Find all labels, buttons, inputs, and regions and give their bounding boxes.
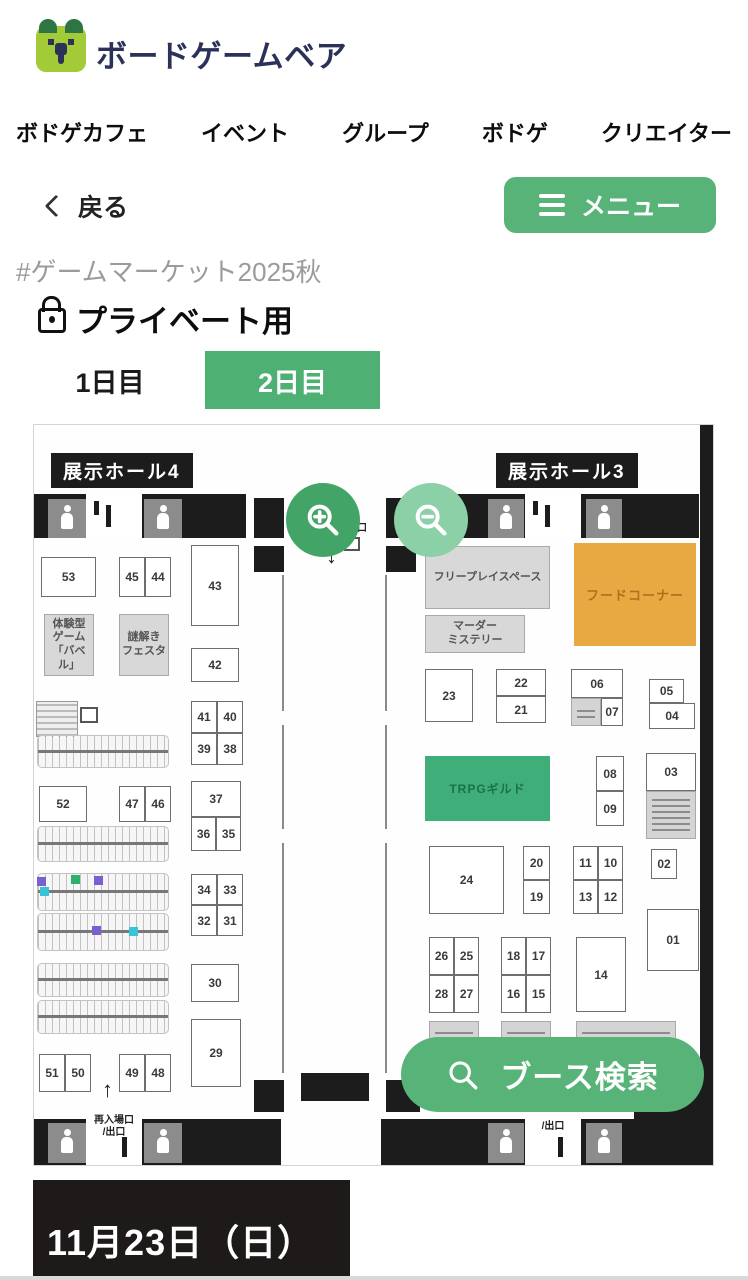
door-mark bbox=[94, 501, 99, 515]
zoom-in-icon bbox=[303, 500, 343, 540]
booth-38: 38 bbox=[217, 733, 243, 765]
area-trpg-guild: TRPGギルド bbox=[425, 756, 550, 821]
booth-row-strip-5 bbox=[37, 963, 169, 997]
booth-04: 04 bbox=[649, 703, 695, 729]
booth-02: 02 bbox=[651, 849, 677, 879]
hall3-label: 展示ホール3 bbox=[496, 453, 638, 488]
door-mark bbox=[122, 1137, 127, 1157]
nav-item-group[interactable]: グループ bbox=[342, 116, 429, 148]
booth-33: 33 bbox=[217, 874, 243, 905]
door-mark bbox=[545, 505, 550, 527]
exit-label: /出口 bbox=[529, 1121, 577, 1133]
booth-47: 47 bbox=[119, 786, 145, 822]
logo-ear-left bbox=[39, 19, 57, 33]
booth-37: 37 bbox=[191, 781, 241, 817]
booth-46: 46 bbox=[145, 786, 171, 822]
search-icon bbox=[446, 1058, 480, 1092]
booth-43: 43 bbox=[191, 545, 239, 626]
booth-21: 21 bbox=[496, 696, 546, 723]
booth-29: 29 bbox=[191, 1019, 241, 1087]
pillar bbox=[254, 1080, 284, 1112]
brand-title[interactable]: ボードゲームベア bbox=[96, 31, 347, 76]
booth-49: 49 bbox=[119, 1054, 145, 1092]
booth-42: 42 bbox=[191, 648, 239, 682]
booth-06: 06 bbox=[571, 669, 623, 698]
menu-label: メニュー bbox=[581, 187, 681, 223]
corridor-wall-line bbox=[282, 843, 284, 1073]
tab-day1[interactable]: 1日目 bbox=[35, 351, 185, 409]
booth-search-button[interactable]: ブース検索 bbox=[401, 1037, 704, 1112]
booth-07: 07 bbox=[601, 698, 623, 726]
back-button[interactable]: 戻る bbox=[48, 188, 128, 224]
main-nav: ボドゲカフェ イベント グループ ボドゲ クリエイター bbox=[16, 116, 732, 148]
nav-item-bodoge-cafe[interactable]: ボドゲカフェ bbox=[16, 116, 148, 148]
booth-53: 53 bbox=[41, 557, 96, 597]
zoom-in-button[interactable] bbox=[286, 483, 360, 557]
logo-ear-right bbox=[65, 19, 83, 33]
area-small-info-cell bbox=[571, 698, 601, 726]
highlighted-booth bbox=[40, 887, 49, 896]
corridor-wall-line bbox=[385, 843, 387, 1073]
booth-01: 01 bbox=[647, 909, 699, 971]
booth-50: 50 bbox=[65, 1054, 91, 1092]
menu-button[interactable]: メニュー bbox=[504, 177, 716, 233]
booth-22: 22 bbox=[496, 669, 546, 696]
booth-row-strip-6 bbox=[37, 1000, 169, 1034]
wall-right bbox=[700, 425, 713, 1165]
small-booth-cluster-box bbox=[80, 707, 98, 723]
logo-mouth bbox=[58, 52, 64, 64]
pillar bbox=[254, 546, 284, 572]
booth-41: 41 bbox=[191, 701, 217, 733]
booth-32: 32 bbox=[191, 905, 217, 936]
booth-31: 31 bbox=[217, 905, 243, 936]
booth-12: 12 bbox=[598, 880, 623, 914]
brand-logo[interactable] bbox=[36, 26, 86, 72]
booth-17: 17 bbox=[526, 937, 551, 975]
logo-eye-left bbox=[48, 39, 54, 45]
restroom-icon bbox=[488, 499, 524, 538]
booth-39: 39 bbox=[191, 733, 217, 765]
booth-row-strip-1 bbox=[37, 735, 169, 768]
area-food-corner: フードコーナー bbox=[574, 543, 696, 646]
highlighted-booth bbox=[129, 927, 138, 936]
booth-25: 25 bbox=[454, 937, 479, 975]
area-info-under-03 bbox=[646, 791, 696, 839]
tab-day2[interactable]: 2日目 bbox=[205, 351, 380, 409]
corridor-wall-line bbox=[385, 725, 387, 829]
booth-row-strip-4 bbox=[37, 913, 169, 951]
booth-11: 11 bbox=[573, 846, 598, 880]
booth-35: 35 bbox=[216, 817, 241, 851]
corridor-wall-line bbox=[282, 725, 284, 829]
back-label: 戻る bbox=[78, 188, 128, 224]
booth-search-label: ブース検索 bbox=[500, 1052, 658, 1097]
booth-36: 36 bbox=[191, 817, 216, 851]
booth-24: 24 bbox=[429, 846, 504, 914]
highlighted-booth bbox=[94, 876, 103, 885]
lock-icon bbox=[38, 308, 66, 333]
highlighted-booth bbox=[37, 877, 46, 886]
date-banner: 11月23日（日） bbox=[33, 1180, 350, 1280]
corridor-wall-line bbox=[385, 575, 387, 711]
booth-15: 15 bbox=[526, 975, 551, 1013]
booth-09: 09 bbox=[596, 791, 624, 826]
restroom-icon bbox=[586, 1123, 622, 1163]
wall-corridor-bottom bbox=[301, 1073, 369, 1101]
chevron-left-icon bbox=[45, 195, 68, 218]
booth-45: 45 bbox=[119, 557, 145, 597]
page-title: プライベート用 bbox=[76, 296, 293, 341]
booth-44: 44 bbox=[145, 557, 171, 597]
highlighted-booth bbox=[92, 926, 101, 935]
event-hashtag[interactable]: #ゲームマーケット2025秋 bbox=[16, 252, 322, 289]
floor-map: 展示ホール4 展示ホール3 入場口 ↓ ↑ 再入場口 /出口 /出口 ブース検索 bbox=[33, 424, 714, 1166]
booth-row-strip-2 bbox=[37, 826, 169, 862]
booth-40: 40 bbox=[217, 701, 243, 733]
booth-30: 30 bbox=[191, 964, 239, 1002]
booth-51: 51 bbox=[39, 1054, 65, 1092]
area-taiken-game-babel: 体験型 ゲーム 「バベル」 bbox=[44, 614, 94, 676]
booth-23: 23 bbox=[425, 669, 473, 722]
small-booth-cluster bbox=[36, 701, 78, 737]
logo-eye-right bbox=[68, 39, 74, 45]
nav-item-bodoge[interactable]: ボドゲ bbox=[482, 116, 548, 148]
booth-16: 16 bbox=[501, 975, 526, 1013]
zoom-out-button[interactable] bbox=[394, 483, 468, 557]
booth-19: 19 bbox=[523, 880, 550, 914]
corridor-wall-line bbox=[282, 575, 284, 711]
booth-28: 28 bbox=[429, 975, 454, 1013]
restroom-icon bbox=[488, 1123, 524, 1163]
booth-27: 27 bbox=[454, 975, 479, 1013]
zoom-out-icon bbox=[411, 500, 451, 540]
booth-18: 18 bbox=[501, 937, 526, 975]
hamburger-icon bbox=[539, 194, 565, 216]
booth-row-strip-3 bbox=[37, 873, 169, 911]
booth-13: 13 bbox=[573, 880, 598, 914]
area-free-play-space: フリープレイスペース bbox=[425, 546, 550, 609]
door-mark bbox=[106, 505, 111, 527]
reentry-label: 再入場口 /出口 bbox=[74, 1115, 154, 1139]
booth-05: 05 bbox=[649, 679, 684, 703]
booth-03: 03 bbox=[646, 753, 696, 791]
area-murder-mystery: マーダー ミステリー bbox=[425, 615, 525, 653]
nav-item-creator[interactable]: クリエイター bbox=[601, 116, 732, 148]
booth-10: 10 bbox=[598, 846, 623, 880]
restroom-icon bbox=[144, 499, 182, 538]
booth-52: 52 bbox=[39, 786, 87, 822]
booth-26: 26 bbox=[429, 937, 454, 975]
area-nazotoki-festa: 謎解き フェスタ bbox=[119, 614, 169, 676]
highlighted-booth bbox=[71, 875, 80, 884]
booth-48: 48 bbox=[145, 1054, 171, 1092]
pillar bbox=[254, 498, 284, 538]
restroom-icon bbox=[48, 499, 86, 538]
door-mark bbox=[558, 1137, 563, 1157]
booth-08: 08 bbox=[596, 756, 624, 791]
booth-14: 14 bbox=[576, 937, 626, 1012]
booth-34: 34 bbox=[191, 874, 217, 905]
section-divider bbox=[0, 1276, 748, 1280]
nav-item-event[interactable]: イベント bbox=[201, 116, 289, 148]
door-mark bbox=[533, 501, 538, 515]
up-arrow-icon: ↑ bbox=[102, 1077, 113, 1103]
hall4-label: 展示ホール4 bbox=[51, 453, 193, 488]
booth-20: 20 bbox=[523, 846, 550, 880]
restroom-icon bbox=[586, 499, 622, 538]
